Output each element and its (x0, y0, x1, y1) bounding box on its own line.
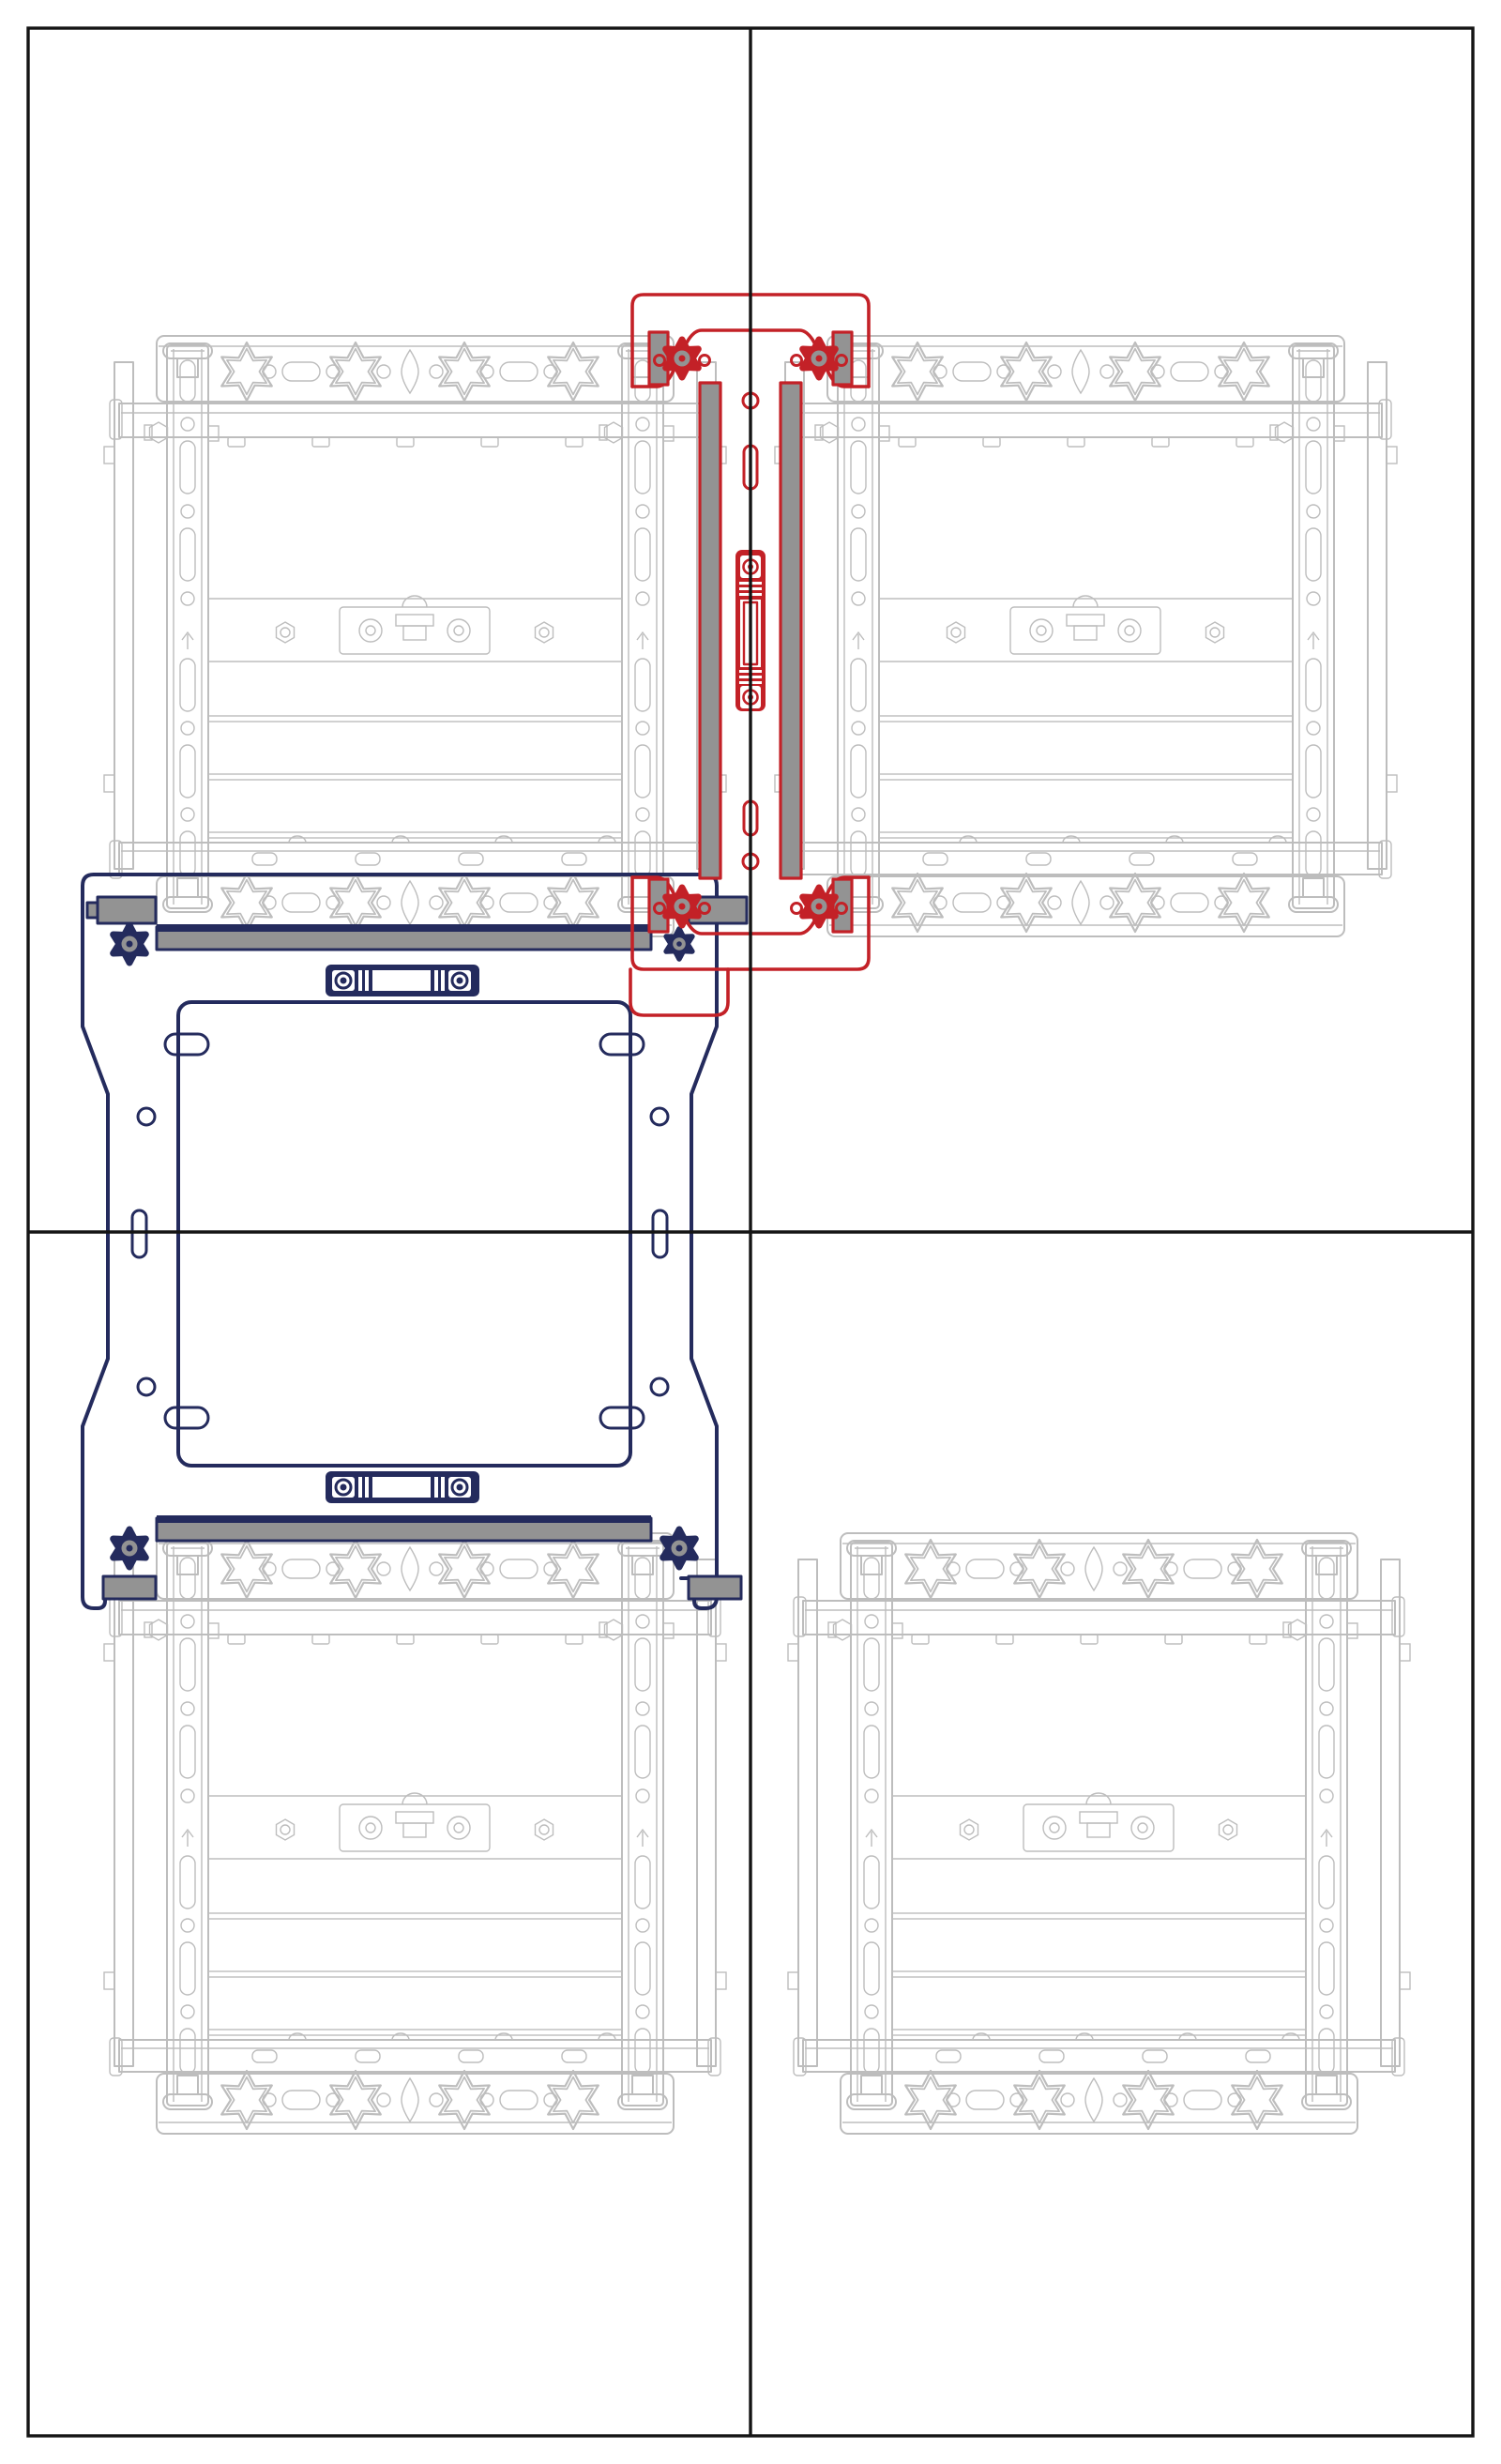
plate-window (178, 1002, 630, 1466)
frame-top-right (775, 336, 1397, 936)
plate-hole (651, 1378, 668, 1395)
plate-slot (600, 1407, 644, 1428)
frame-top-left (104, 336, 726, 936)
plate-hole (138, 1108, 155, 1125)
plate-outline-left (83, 875, 118, 1608)
plate-hole (138, 1378, 155, 1395)
navy-adapter-plate (83, 875, 747, 1608)
red-rail-strip-right (781, 383, 801, 878)
plate-knob-bottom-left (114, 1529, 146, 1567)
plate-clamp-bar-bottom (157, 1515, 651, 1541)
plate-wing-bar-top-left (87, 897, 156, 923)
plate-slot (600, 1034, 644, 1055)
plate-knob-top-right (666, 929, 692, 959)
plate-hole (651, 1108, 668, 1125)
drawing-canvas (0, 0, 1501, 2464)
plate-pin-slot (653, 1210, 667, 1257)
plate-knob-bottom-right (663, 1529, 696, 1567)
plate-knob-top-left (114, 925, 146, 963)
plate-wing-bar-bottom-right (689, 1576, 741, 1599)
assembly-drawing (0, 0, 1501, 2464)
frame-bottom-right (788, 1533, 1410, 2134)
plate-slot (165, 1034, 208, 1055)
plate-clamp-bar-top (157, 924, 651, 950)
red-rail-strip-left (700, 383, 720, 878)
plate-slot (165, 1407, 208, 1428)
plate-handle-bottom (326, 1471, 479, 1503)
plate-handle-top (326, 965, 479, 996)
frame-bottom-left (104, 1533, 726, 2134)
red-hook-outline (630, 969, 728, 1015)
plate-wing-bar-bottom-left (103, 1576, 156, 1599)
plate-pin-slot (132, 1210, 146, 1257)
